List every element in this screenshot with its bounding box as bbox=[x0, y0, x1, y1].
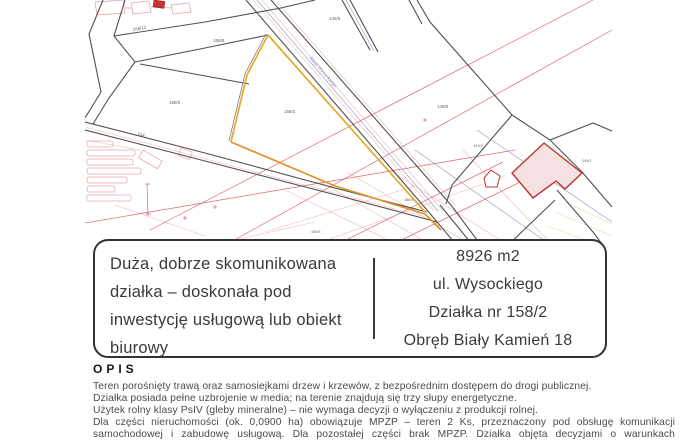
map-plot-label: 158/9 bbox=[169, 100, 181, 105]
subject-plot-outline bbox=[231, 35, 425, 212]
area-value: 8926 m2 bbox=[456, 243, 520, 271]
property-description: Duża, dobrze skomunikowana działka – dos… bbox=[95, 241, 373, 356]
map-plot-label: 149/2 bbox=[473, 143, 484, 148]
map-plot-label: 158/1 bbox=[404, 198, 414, 202]
map-plot-label: 160/5 bbox=[311, 230, 321, 234]
map-plot-label: 158/8 bbox=[213, 38, 225, 43]
map-plot-label: 149/5 bbox=[437, 104, 449, 109]
opis-paragraph: Dla części nieruchomości (ok. 0,0900 ha)… bbox=[93, 417, 675, 441]
plot-number-value: Działka nr 158/2 bbox=[429, 299, 548, 327]
opis-paragraph: Działka posiada pełne uzbrojenie w media… bbox=[93, 393, 675, 405]
property-facts: 8926 m2 ul. Wysockiego Działka nr 158/2 … bbox=[375, 241, 605, 356]
cadastral-map-svg: 158/12158/8158/9158/2146/5149/5149/2149/… bbox=[85, 0, 612, 248]
utility-lines-blue bbox=[257, 0, 612, 248]
large-building bbox=[512, 143, 582, 198]
opis-paragraph: Teren porośnięty trawą oraz samosiejkami… bbox=[93, 381, 675, 393]
district-value: Obręb Biały Kamień 18 bbox=[404, 327, 573, 355]
map-plot-label: 158/2 bbox=[284, 109, 296, 114]
opis-paragraph: Użytek rolny klasy PsIV (gleby mineralne… bbox=[93, 405, 675, 417]
street-value: ul. Wysockiego bbox=[433, 271, 543, 299]
subject-plot-outline-bottom bbox=[231, 142, 441, 230]
property-info-box: Duża, dobrze skomunikowana działka – dos… bbox=[93, 239, 607, 358]
listing-page: 158/12158/8158/9158/2146/5149/5149/2149/… bbox=[0, 0, 700, 441]
map-plot-label: 149/1 bbox=[582, 159, 592, 163]
building-outlines bbox=[95, 0, 191, 15]
utility-lines-red bbox=[85, 0, 612, 248]
small-building bbox=[484, 170, 500, 187]
small-red-building bbox=[153, 0, 165, 8]
opis-section: OPIS Teren porośnięty trawą oraz samosie… bbox=[93, 362, 675, 441]
map-plot-label: 146/5 bbox=[329, 16, 341, 21]
cadastral-map: 158/12158/8158/9158/2146/5149/5149/2149/… bbox=[85, 0, 612, 248]
parcel-boundaries bbox=[85, 0, 612, 248]
opis-title: OPIS bbox=[93, 362, 675, 376]
